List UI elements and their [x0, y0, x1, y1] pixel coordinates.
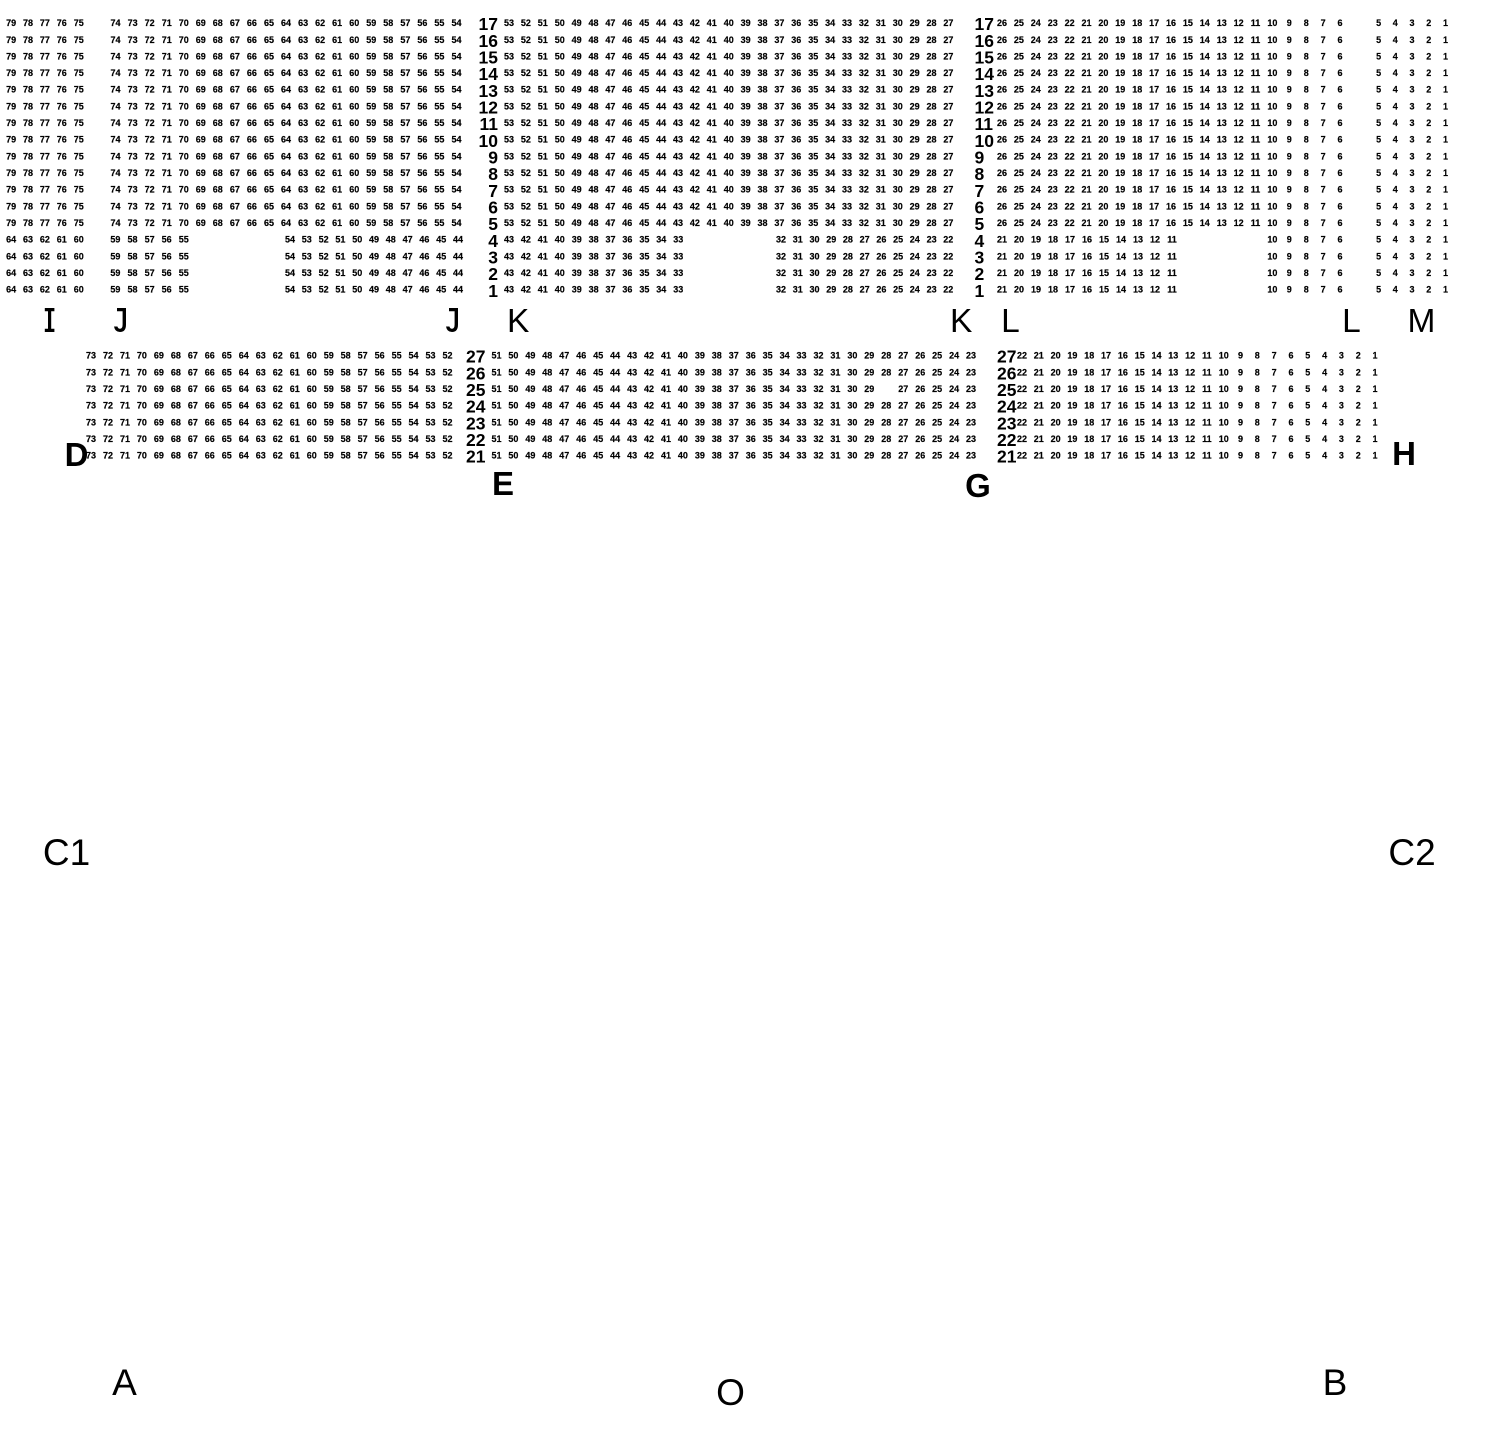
svg-text:26: 26: [997, 218, 1007, 228]
svg-text:3: 3: [1409, 185, 1414, 195]
svg-text:52: 52: [319, 251, 329, 261]
svg-text:35: 35: [808, 35, 818, 45]
svg-text:25: 25: [1014, 201, 1024, 211]
svg-text:27: 27: [860, 235, 870, 245]
svg-text:29: 29: [826, 268, 836, 278]
svg-text:31: 31: [793, 251, 803, 261]
svg-text:65: 65: [264, 51, 274, 61]
svg-text:29: 29: [864, 351, 874, 361]
svg-text:63: 63: [256, 417, 266, 427]
svg-text:25: 25: [1014, 101, 1024, 111]
svg-text:72: 72: [145, 51, 155, 61]
svg-text:7: 7: [1272, 451, 1277, 461]
svg-text:53: 53: [425, 434, 435, 444]
svg-text:46: 46: [576, 367, 586, 377]
svg-text:1: 1: [1443, 268, 1448, 278]
svg-text:58: 58: [341, 384, 351, 394]
svg-text:46: 46: [622, 35, 632, 45]
svg-text:52: 52: [521, 201, 531, 211]
svg-text:33: 33: [796, 417, 806, 427]
svg-text:35: 35: [639, 251, 649, 261]
svg-text:1: 1: [1372, 434, 1377, 444]
svg-text:75: 75: [74, 85, 84, 95]
svg-text:59: 59: [324, 417, 334, 427]
svg-text:59: 59: [324, 401, 334, 411]
svg-text:33: 33: [796, 451, 806, 461]
svg-text:28: 28: [926, 168, 936, 178]
svg-text:64: 64: [281, 68, 291, 78]
svg-text:11: 11: [1251, 51, 1261, 61]
svg-text:15: 15: [1099, 285, 1109, 295]
svg-text:17: 17: [1149, 18, 1159, 28]
svg-text:3: 3: [1409, 235, 1414, 245]
svg-text:14: 14: [1116, 235, 1126, 245]
svg-text:76: 76: [57, 35, 67, 45]
svg-text:7: 7: [1321, 235, 1326, 245]
svg-text:13: 13: [1168, 451, 1178, 461]
svg-text:38: 38: [712, 417, 722, 427]
svg-text:9: 9: [1287, 151, 1292, 161]
svg-text:1: 1: [1372, 384, 1377, 394]
svg-text:54: 54: [408, 351, 418, 361]
svg-text:54: 54: [408, 434, 418, 444]
svg-text:18: 18: [1132, 35, 1142, 45]
svg-text:65: 65: [264, 18, 274, 28]
svg-text:47: 47: [559, 384, 569, 394]
svg-text:79: 79: [6, 118, 16, 128]
svg-text:4: 4: [1393, 201, 1398, 211]
svg-text:63: 63: [298, 51, 308, 61]
svg-text:12: 12: [1185, 351, 1195, 361]
svg-text:2: 2: [1356, 351, 1361, 361]
svg-text:61: 61: [57, 251, 67, 261]
svg-text:31: 31: [830, 451, 840, 461]
svg-text:69: 69: [196, 18, 206, 28]
svg-text:79: 79: [6, 201, 16, 211]
svg-text:12: 12: [1234, 218, 1244, 228]
svg-text:49: 49: [369, 251, 379, 261]
svg-text:24: 24: [949, 367, 959, 377]
svg-text:15: 15: [1183, 101, 1193, 111]
svg-text:64: 64: [6, 268, 16, 278]
svg-text:77: 77: [40, 68, 50, 78]
svg-text:1: 1: [1443, 135, 1448, 145]
svg-text:72: 72: [103, 384, 113, 394]
svg-text:47: 47: [605, 201, 615, 211]
svg-text:62: 62: [315, 151, 325, 161]
svg-text:22: 22: [1065, 135, 1075, 145]
svg-text:29: 29: [864, 451, 874, 461]
svg-text:38: 38: [712, 367, 722, 377]
svg-text:5: 5: [1376, 201, 1381, 211]
svg-text:61: 61: [57, 268, 67, 278]
svg-text:72: 72: [145, 151, 155, 161]
svg-text:7: 7: [1321, 101, 1326, 111]
svg-text:23: 23: [966, 401, 976, 411]
svg-text:32: 32: [859, 185, 869, 195]
svg-text:3: 3: [1409, 35, 1414, 45]
svg-text:41: 41: [538, 235, 548, 245]
svg-text:64: 64: [239, 351, 249, 361]
svg-text:62: 62: [315, 135, 325, 145]
svg-text:36: 36: [746, 417, 756, 427]
svg-text:14: 14: [1151, 451, 1161, 461]
svg-text:14: 14: [1151, 434, 1161, 444]
svg-text:43: 43: [673, 168, 683, 178]
svg-text:43: 43: [627, 451, 637, 461]
svg-text:23: 23: [1048, 18, 1058, 28]
svg-text:63: 63: [256, 434, 266, 444]
svg-text:60: 60: [349, 118, 359, 128]
svg-text:60: 60: [74, 285, 84, 295]
svg-text:1: 1: [1443, 35, 1448, 45]
svg-text:37: 37: [774, 68, 784, 78]
svg-text:18: 18: [1048, 268, 1058, 278]
svg-text:33: 33: [673, 285, 683, 295]
svg-text:38: 38: [757, 101, 767, 111]
svg-text:19: 19: [1115, 218, 1125, 228]
svg-text:25: 25: [932, 434, 942, 444]
svg-text:4: 4: [1393, 51, 1398, 61]
svg-text:28: 28: [926, 118, 936, 128]
svg-text:39: 39: [695, 417, 705, 427]
svg-text:35: 35: [808, 201, 818, 211]
svg-text:6: 6: [1288, 351, 1293, 361]
svg-text:50: 50: [555, 118, 565, 128]
svg-text:11: 11: [1251, 101, 1261, 111]
svg-text:47: 47: [403, 235, 413, 245]
svg-text:66: 66: [247, 135, 257, 145]
svg-text:70: 70: [179, 168, 189, 178]
svg-text:10: 10: [1267, 168, 1277, 178]
svg-text:26: 26: [915, 351, 925, 361]
svg-text:13: 13: [1168, 434, 1178, 444]
svg-text:M: M: [1407, 303, 1435, 340]
svg-text:47: 47: [605, 218, 615, 228]
svg-text:2: 2: [1356, 451, 1361, 461]
svg-text:57: 57: [400, 118, 410, 128]
svg-text:15: 15: [1135, 451, 1145, 461]
svg-text:34: 34: [825, 185, 835, 195]
svg-text:70: 70: [137, 384, 147, 394]
svg-text:34: 34: [825, 168, 835, 178]
svg-text:13: 13: [1217, 51, 1227, 61]
svg-text:29: 29: [910, 51, 920, 61]
svg-text:48: 48: [542, 401, 552, 411]
svg-text:19: 19: [1115, 68, 1125, 78]
svg-text:6: 6: [1288, 417, 1293, 427]
svg-text:45: 45: [639, 68, 649, 78]
svg-text:32: 32: [859, 18, 869, 28]
svg-text:67: 67: [230, 101, 240, 111]
svg-text:54: 54: [451, 18, 461, 28]
svg-text:78: 78: [23, 18, 33, 28]
svg-text:60: 60: [307, 384, 317, 394]
svg-text:21: 21: [997, 447, 1017, 467]
svg-text:55: 55: [434, 51, 444, 61]
svg-text:45: 45: [639, 18, 649, 28]
svg-text:11: 11: [1167, 251, 1177, 261]
svg-text:49: 49: [525, 401, 535, 411]
svg-text:19: 19: [1115, 118, 1125, 128]
svg-text:6: 6: [1337, 218, 1342, 228]
svg-text:36: 36: [791, 135, 801, 145]
svg-text:49: 49: [572, 185, 582, 195]
svg-text:12: 12: [1185, 417, 1195, 427]
svg-text:34: 34: [780, 434, 790, 444]
svg-text:12: 12: [1185, 451, 1195, 461]
svg-text:66: 66: [247, 85, 257, 95]
svg-text:4: 4: [1393, 168, 1398, 178]
svg-text:69: 69: [196, 168, 206, 178]
svg-text:62: 62: [315, 118, 325, 128]
svg-text:64: 64: [281, 135, 291, 145]
svg-text:48: 48: [542, 451, 552, 461]
svg-text:55: 55: [392, 384, 402, 394]
svg-text:38: 38: [757, 168, 767, 178]
svg-text:46: 46: [622, 85, 632, 95]
svg-text:38: 38: [757, 35, 767, 45]
svg-text:1: 1: [1443, 85, 1448, 95]
svg-text:34: 34: [825, 118, 835, 128]
svg-text:1: 1: [1372, 351, 1377, 361]
svg-text:67: 67: [230, 85, 240, 95]
svg-text:24: 24: [910, 251, 920, 261]
svg-text:76: 76: [57, 118, 67, 128]
svg-text:55: 55: [392, 367, 402, 377]
svg-text:15: 15: [1099, 235, 1109, 245]
svg-text:40: 40: [724, 51, 734, 61]
svg-text:69: 69: [154, 367, 164, 377]
svg-text:48: 48: [542, 417, 552, 427]
svg-text:59: 59: [366, 168, 376, 178]
svg-text:54: 54: [451, 185, 461, 195]
svg-text:63: 63: [298, 68, 308, 78]
svg-text:40: 40: [678, 434, 688, 444]
svg-text:65: 65: [222, 351, 232, 361]
svg-text:19: 19: [1031, 268, 1041, 278]
svg-text:23: 23: [1048, 201, 1058, 211]
svg-text:19: 19: [1067, 451, 1077, 461]
svg-text:61: 61: [332, 168, 342, 178]
svg-text:6: 6: [1337, 268, 1342, 278]
svg-text:62: 62: [273, 351, 283, 361]
svg-text:60: 60: [349, 168, 359, 178]
svg-text:15: 15: [1183, 35, 1193, 45]
svg-text:39: 39: [741, 85, 751, 95]
svg-text:10: 10: [1267, 68, 1277, 78]
svg-text:18: 18: [1132, 168, 1142, 178]
svg-text:71: 71: [162, 118, 172, 128]
svg-text:16: 16: [1166, 35, 1176, 45]
svg-text:13: 13: [1133, 251, 1143, 261]
svg-text:30: 30: [847, 384, 857, 394]
svg-text:46: 46: [622, 151, 632, 161]
svg-text:60: 60: [307, 351, 317, 361]
svg-text:59: 59: [366, 218, 376, 228]
svg-text:37: 37: [774, 168, 784, 178]
svg-text:29: 29: [826, 251, 836, 261]
svg-text:45: 45: [639, 85, 649, 95]
svg-text:4: 4: [1393, 235, 1398, 245]
svg-text:18: 18: [1084, 367, 1094, 377]
svg-text:12: 12: [1150, 251, 1160, 261]
svg-text:40: 40: [555, 251, 565, 261]
svg-text:17: 17: [1101, 401, 1111, 411]
svg-text:40: 40: [724, 18, 734, 28]
svg-text:78: 78: [23, 201, 33, 211]
svg-text:19: 19: [1115, 85, 1125, 95]
svg-text:55: 55: [434, 118, 444, 128]
svg-text:74: 74: [110, 168, 120, 178]
svg-text:22: 22: [1065, 101, 1075, 111]
svg-text:33: 33: [842, 118, 852, 128]
svg-text:36: 36: [746, 384, 756, 394]
svg-text:42: 42: [644, 451, 654, 461]
svg-text:53: 53: [302, 268, 312, 278]
svg-text:49: 49: [525, 384, 535, 394]
svg-text:46: 46: [576, 401, 586, 411]
svg-text:74: 74: [110, 135, 120, 145]
svg-text:29: 29: [910, 85, 920, 95]
svg-text:14: 14: [1200, 118, 1210, 128]
svg-text:6: 6: [1337, 168, 1342, 178]
svg-text:51: 51: [335, 268, 345, 278]
svg-text:64: 64: [239, 451, 249, 461]
svg-text:41: 41: [661, 401, 671, 411]
svg-text:47: 47: [559, 367, 569, 377]
svg-text:10: 10: [1267, 18, 1277, 28]
svg-text:43: 43: [627, 384, 637, 394]
svg-text:3: 3: [1409, 168, 1414, 178]
svg-text:24: 24: [1031, 85, 1041, 95]
svg-text:50: 50: [508, 367, 518, 377]
svg-text:38: 38: [589, 251, 599, 261]
svg-text:74: 74: [110, 51, 120, 61]
svg-text:57: 57: [358, 367, 368, 377]
svg-text:46: 46: [576, 417, 586, 427]
svg-text:58: 58: [127, 268, 137, 278]
svg-text:65: 65: [264, 135, 274, 145]
svg-text:9: 9: [1287, 18, 1292, 28]
svg-text:8: 8: [1304, 201, 1309, 211]
svg-text:6: 6: [1288, 401, 1293, 411]
svg-text:69: 69: [196, 185, 206, 195]
svg-text:5: 5: [1376, 101, 1381, 111]
svg-text:18: 18: [1132, 18, 1142, 28]
svg-text:16: 16: [1166, 118, 1176, 128]
svg-text:72: 72: [103, 351, 113, 361]
svg-text:59: 59: [366, 85, 376, 95]
svg-text:50: 50: [352, 285, 362, 295]
svg-text:26: 26: [997, 35, 1007, 45]
svg-text:23: 23: [1048, 185, 1058, 195]
svg-text:61: 61: [290, 451, 300, 461]
svg-text:23: 23: [1048, 85, 1058, 95]
svg-text:37: 37: [774, 118, 784, 128]
svg-text:24: 24: [1031, 68, 1041, 78]
svg-text:8: 8: [1304, 268, 1309, 278]
svg-text:8: 8: [1304, 118, 1309, 128]
svg-text:58: 58: [127, 285, 137, 295]
svg-text:18: 18: [1132, 185, 1142, 195]
svg-text:18: 18: [1048, 251, 1058, 261]
svg-text:2: 2: [1426, 285, 1431, 295]
svg-text:64: 64: [281, 151, 291, 161]
svg-text:56: 56: [417, 118, 427, 128]
svg-text:12: 12: [1234, 201, 1244, 211]
svg-text:19: 19: [1067, 351, 1077, 361]
svg-text:6: 6: [1337, 235, 1342, 245]
svg-text:9: 9: [1238, 434, 1243, 444]
svg-text:21: 21: [1081, 35, 1091, 45]
svg-text:3: 3: [1409, 85, 1414, 95]
svg-text:35: 35: [808, 101, 818, 111]
svg-text:22: 22: [1065, 68, 1075, 78]
svg-text:72: 72: [145, 85, 155, 95]
svg-text:25: 25: [932, 351, 942, 361]
svg-text:69: 69: [196, 101, 206, 111]
svg-text:26: 26: [876, 235, 886, 245]
svg-text:57: 57: [400, 101, 410, 111]
svg-text:44: 44: [656, 218, 666, 228]
svg-text:50: 50: [508, 401, 518, 411]
svg-text:45: 45: [639, 151, 649, 161]
svg-text:14: 14: [1200, 18, 1210, 28]
svg-text:60: 60: [349, 85, 359, 95]
svg-text:23: 23: [1048, 35, 1058, 45]
svg-text:71: 71: [162, 201, 172, 211]
svg-text:5: 5: [1305, 384, 1310, 394]
svg-text:18: 18: [1084, 451, 1094, 461]
svg-text:57: 57: [358, 384, 368, 394]
svg-text:45: 45: [639, 35, 649, 45]
svg-text:21: 21: [1081, 68, 1091, 78]
svg-text:79: 79: [6, 51, 16, 61]
svg-text:38: 38: [757, 51, 767, 61]
svg-text:10: 10: [1267, 185, 1277, 195]
svg-text:48: 48: [588, 218, 598, 228]
svg-text:3: 3: [1409, 285, 1414, 295]
svg-text:68: 68: [213, 185, 223, 195]
svg-text:57: 57: [145, 285, 155, 295]
svg-text:8: 8: [1255, 367, 1260, 377]
svg-text:10: 10: [1267, 118, 1277, 128]
svg-text:23: 23: [966, 434, 976, 444]
svg-text:3: 3: [1339, 367, 1344, 377]
svg-text:53: 53: [425, 401, 435, 411]
svg-text:49: 49: [572, 51, 582, 61]
svg-text:15: 15: [1183, 118, 1193, 128]
svg-text:20: 20: [1051, 351, 1061, 361]
svg-text:58: 58: [383, 118, 393, 128]
svg-text:72: 72: [145, 218, 155, 228]
svg-text:38: 38: [712, 434, 722, 444]
svg-text:11: 11: [1251, 68, 1261, 78]
svg-text:23: 23: [1048, 218, 1058, 228]
svg-text:K: K: [950, 303, 972, 340]
svg-text:8: 8: [1304, 151, 1309, 161]
svg-text:11: 11: [1167, 235, 1177, 245]
svg-text:53: 53: [302, 235, 312, 245]
svg-text:19: 19: [1115, 185, 1125, 195]
svg-text:56: 56: [417, 68, 427, 78]
svg-text:47: 47: [605, 135, 615, 145]
svg-text:39: 39: [572, 268, 582, 278]
svg-text:23: 23: [1048, 101, 1058, 111]
svg-text:32: 32: [776, 268, 786, 278]
svg-text:43: 43: [673, 201, 683, 211]
